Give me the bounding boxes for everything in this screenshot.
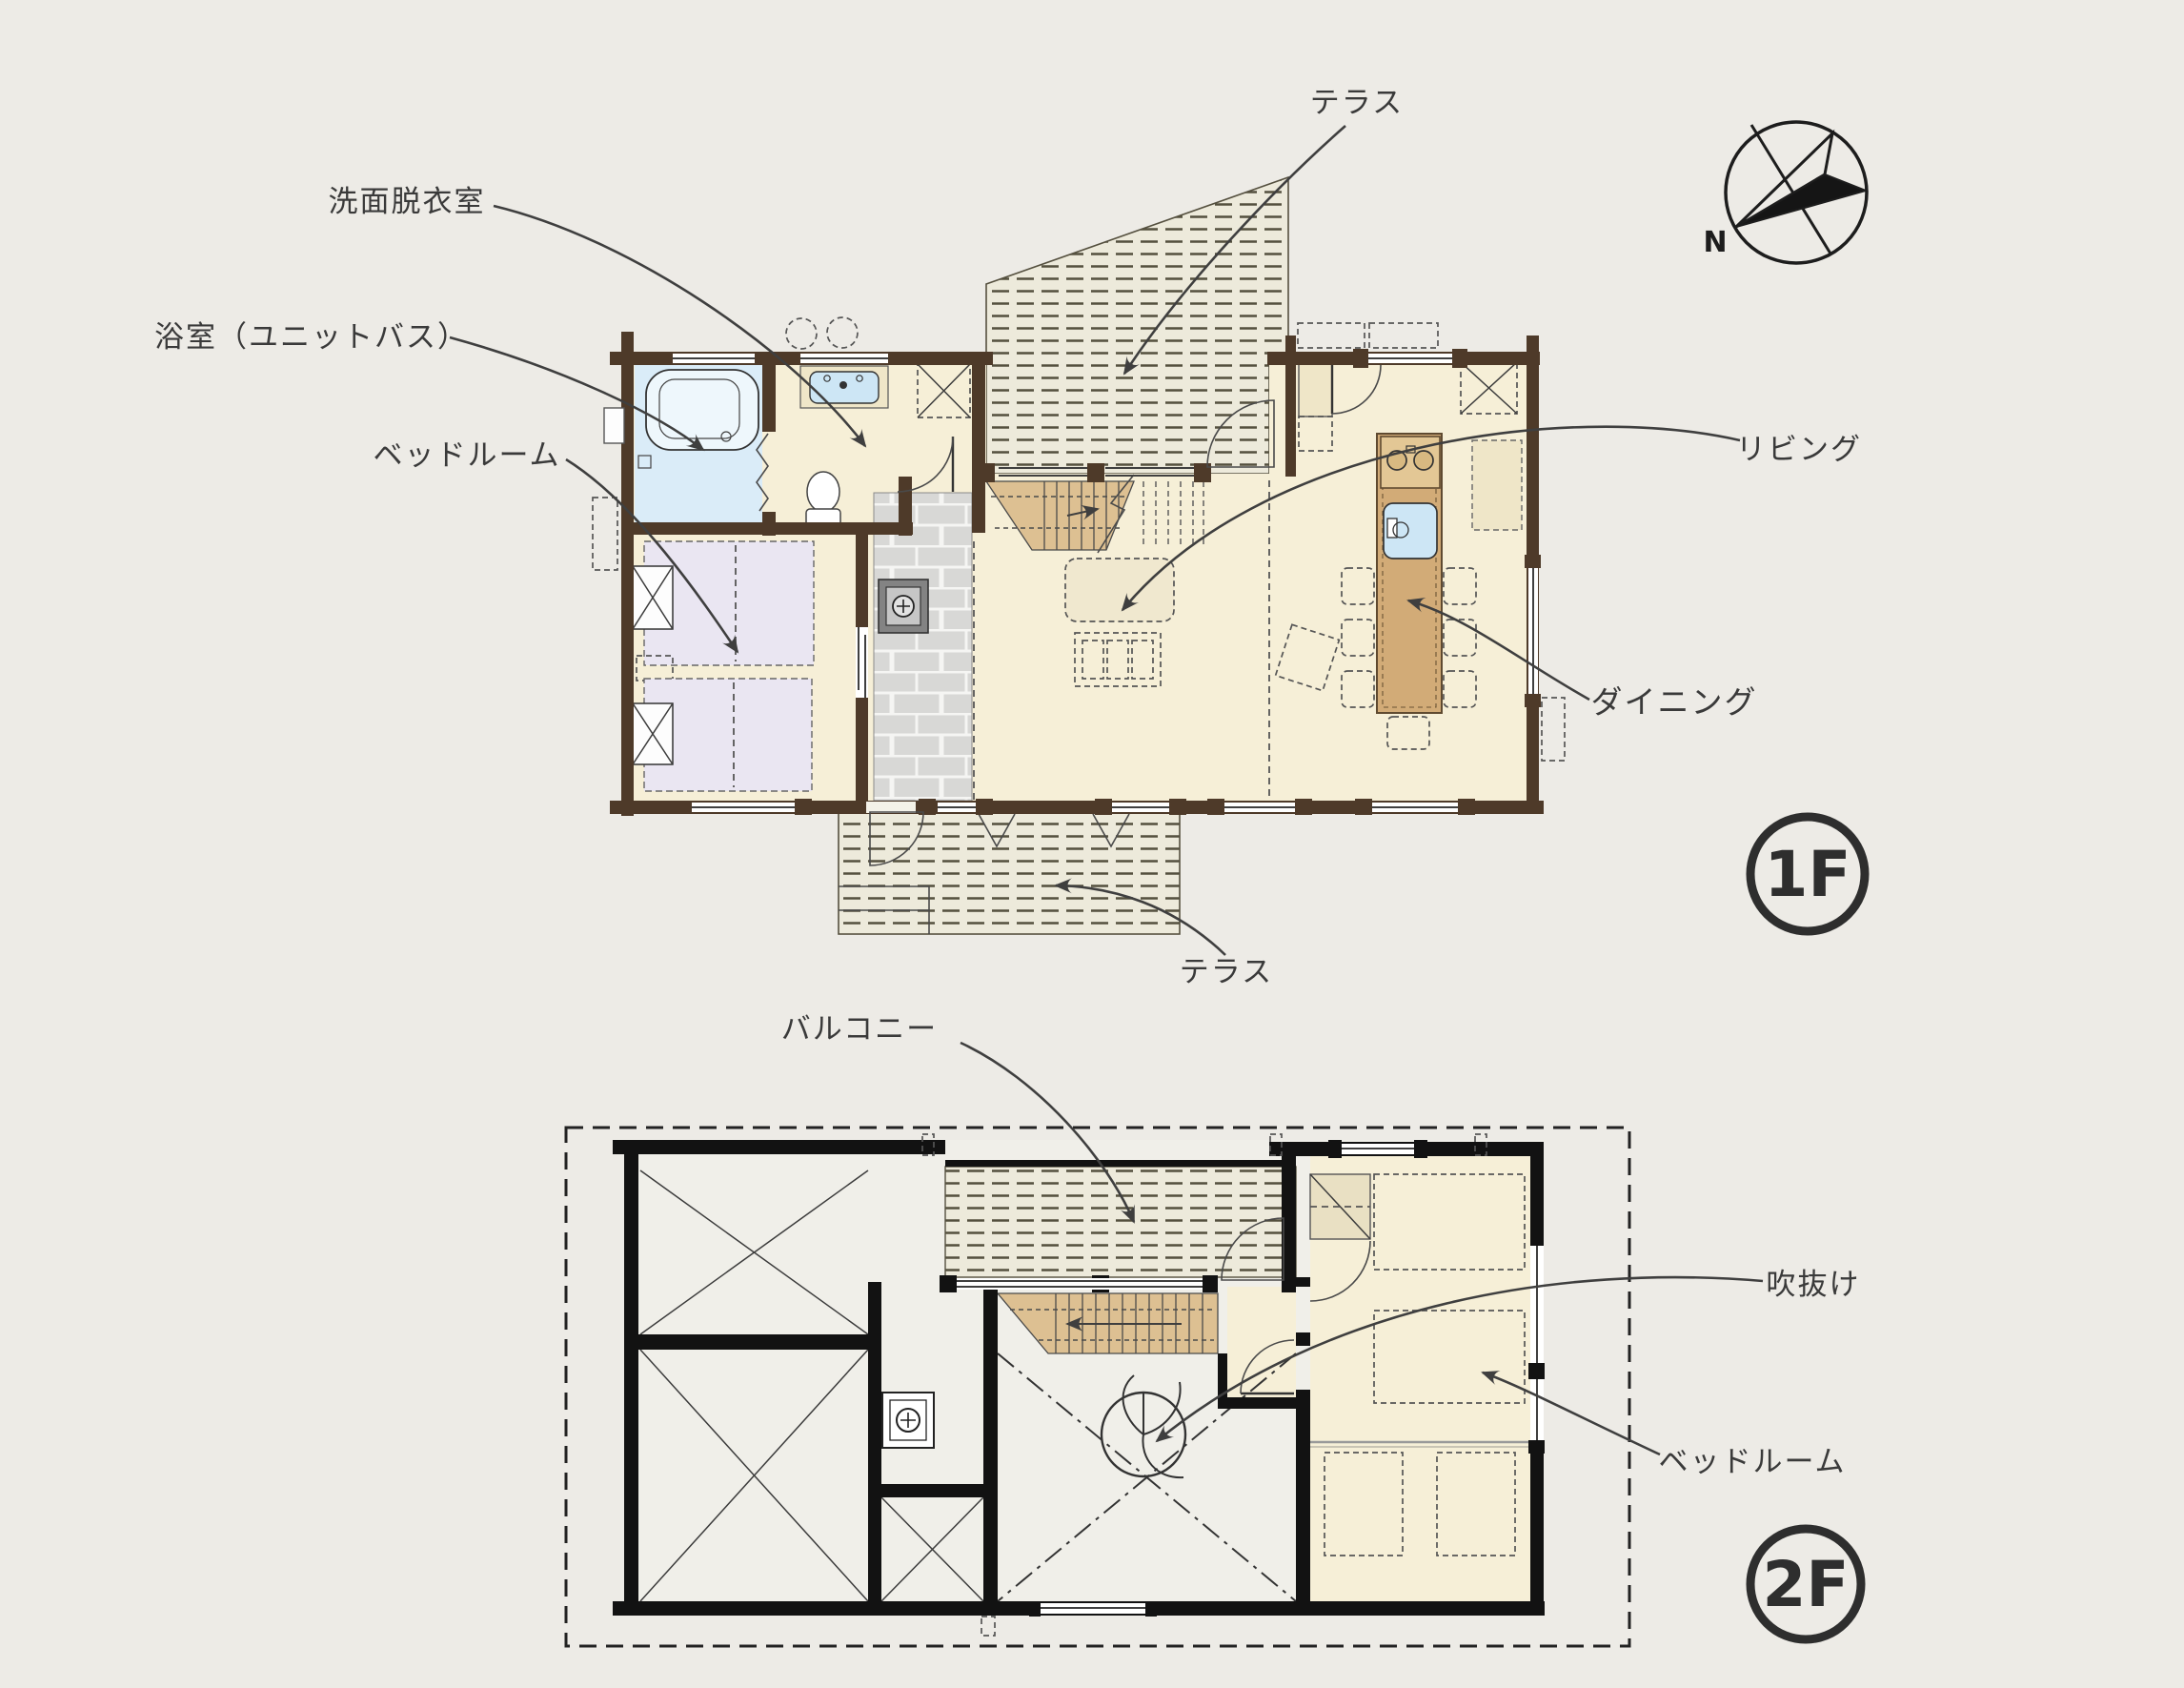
washroom-vanity	[800, 366, 888, 408]
compass-north-label: N	[1703, 226, 1727, 259]
sofa	[1065, 559, 1174, 621]
terrace-bottom-deck	[839, 813, 1180, 934]
compass-icon: N	[1703, 122, 1867, 263]
bedroom2f-closet	[1310, 1174, 1370, 1239]
landing-floor	[1227, 1287, 1296, 1397]
second-floor-plan	[566, 1128, 1629, 1646]
floor1-badge-text: 1F	[1764, 838, 1850, 911]
terrace-top-deck	[986, 177, 1288, 474]
floor1-badge: 1F	[1750, 817, 1865, 931]
label-bedroom-2f: ベッドルーム	[1658, 1445, 1846, 1479]
floor2-badge-text: 2F	[1762, 1548, 1849, 1621]
bedroom-sliding-door	[856, 627, 868, 698]
label-bathroom: 浴室（ユニットバス）	[154, 320, 469, 355]
floor2-badge: 2F	[1750, 1529, 1861, 1639]
label-balcony: バルコニー	[781, 1012, 938, 1047]
kitchen-back-counter	[1472, 440, 1522, 530]
label-bedroom-1f: ベッドルーム	[373, 438, 560, 473]
entrance-hall-tiles	[874, 493, 974, 801]
label-living: リビング	[1736, 433, 1862, 467]
label-dining: ダイニング	[1591, 683, 1758, 721]
wood-stove-icon	[879, 580, 928, 633]
floorplan-canvas: テラス 洗面脱衣室 浴室（ユニットバス） ベッドルーム リビング ダイニング テ…	[0, 0, 2184, 1688]
toilet	[806, 472, 840, 528]
label-washroom: 洗面脱衣室	[329, 185, 486, 219]
flue-icon	[882, 1393, 934, 1448]
first-floor-plan	[593, 177, 1565, 934]
label-void: 吹抜け	[1767, 1268, 1861, 1302]
label-terrace-top: テラス	[1310, 86, 1404, 120]
label-terrace-bottom: テラス	[1180, 955, 1273, 989]
floorplan-page: テラス 洗面脱衣室 浴室（ユニットバス） ベッドルーム リビング ダイニング テ…	[0, 0, 2184, 1688]
kitchen-island-dining-table	[1377, 434, 1442, 713]
balcony-deck	[945, 1160, 1296, 1277]
